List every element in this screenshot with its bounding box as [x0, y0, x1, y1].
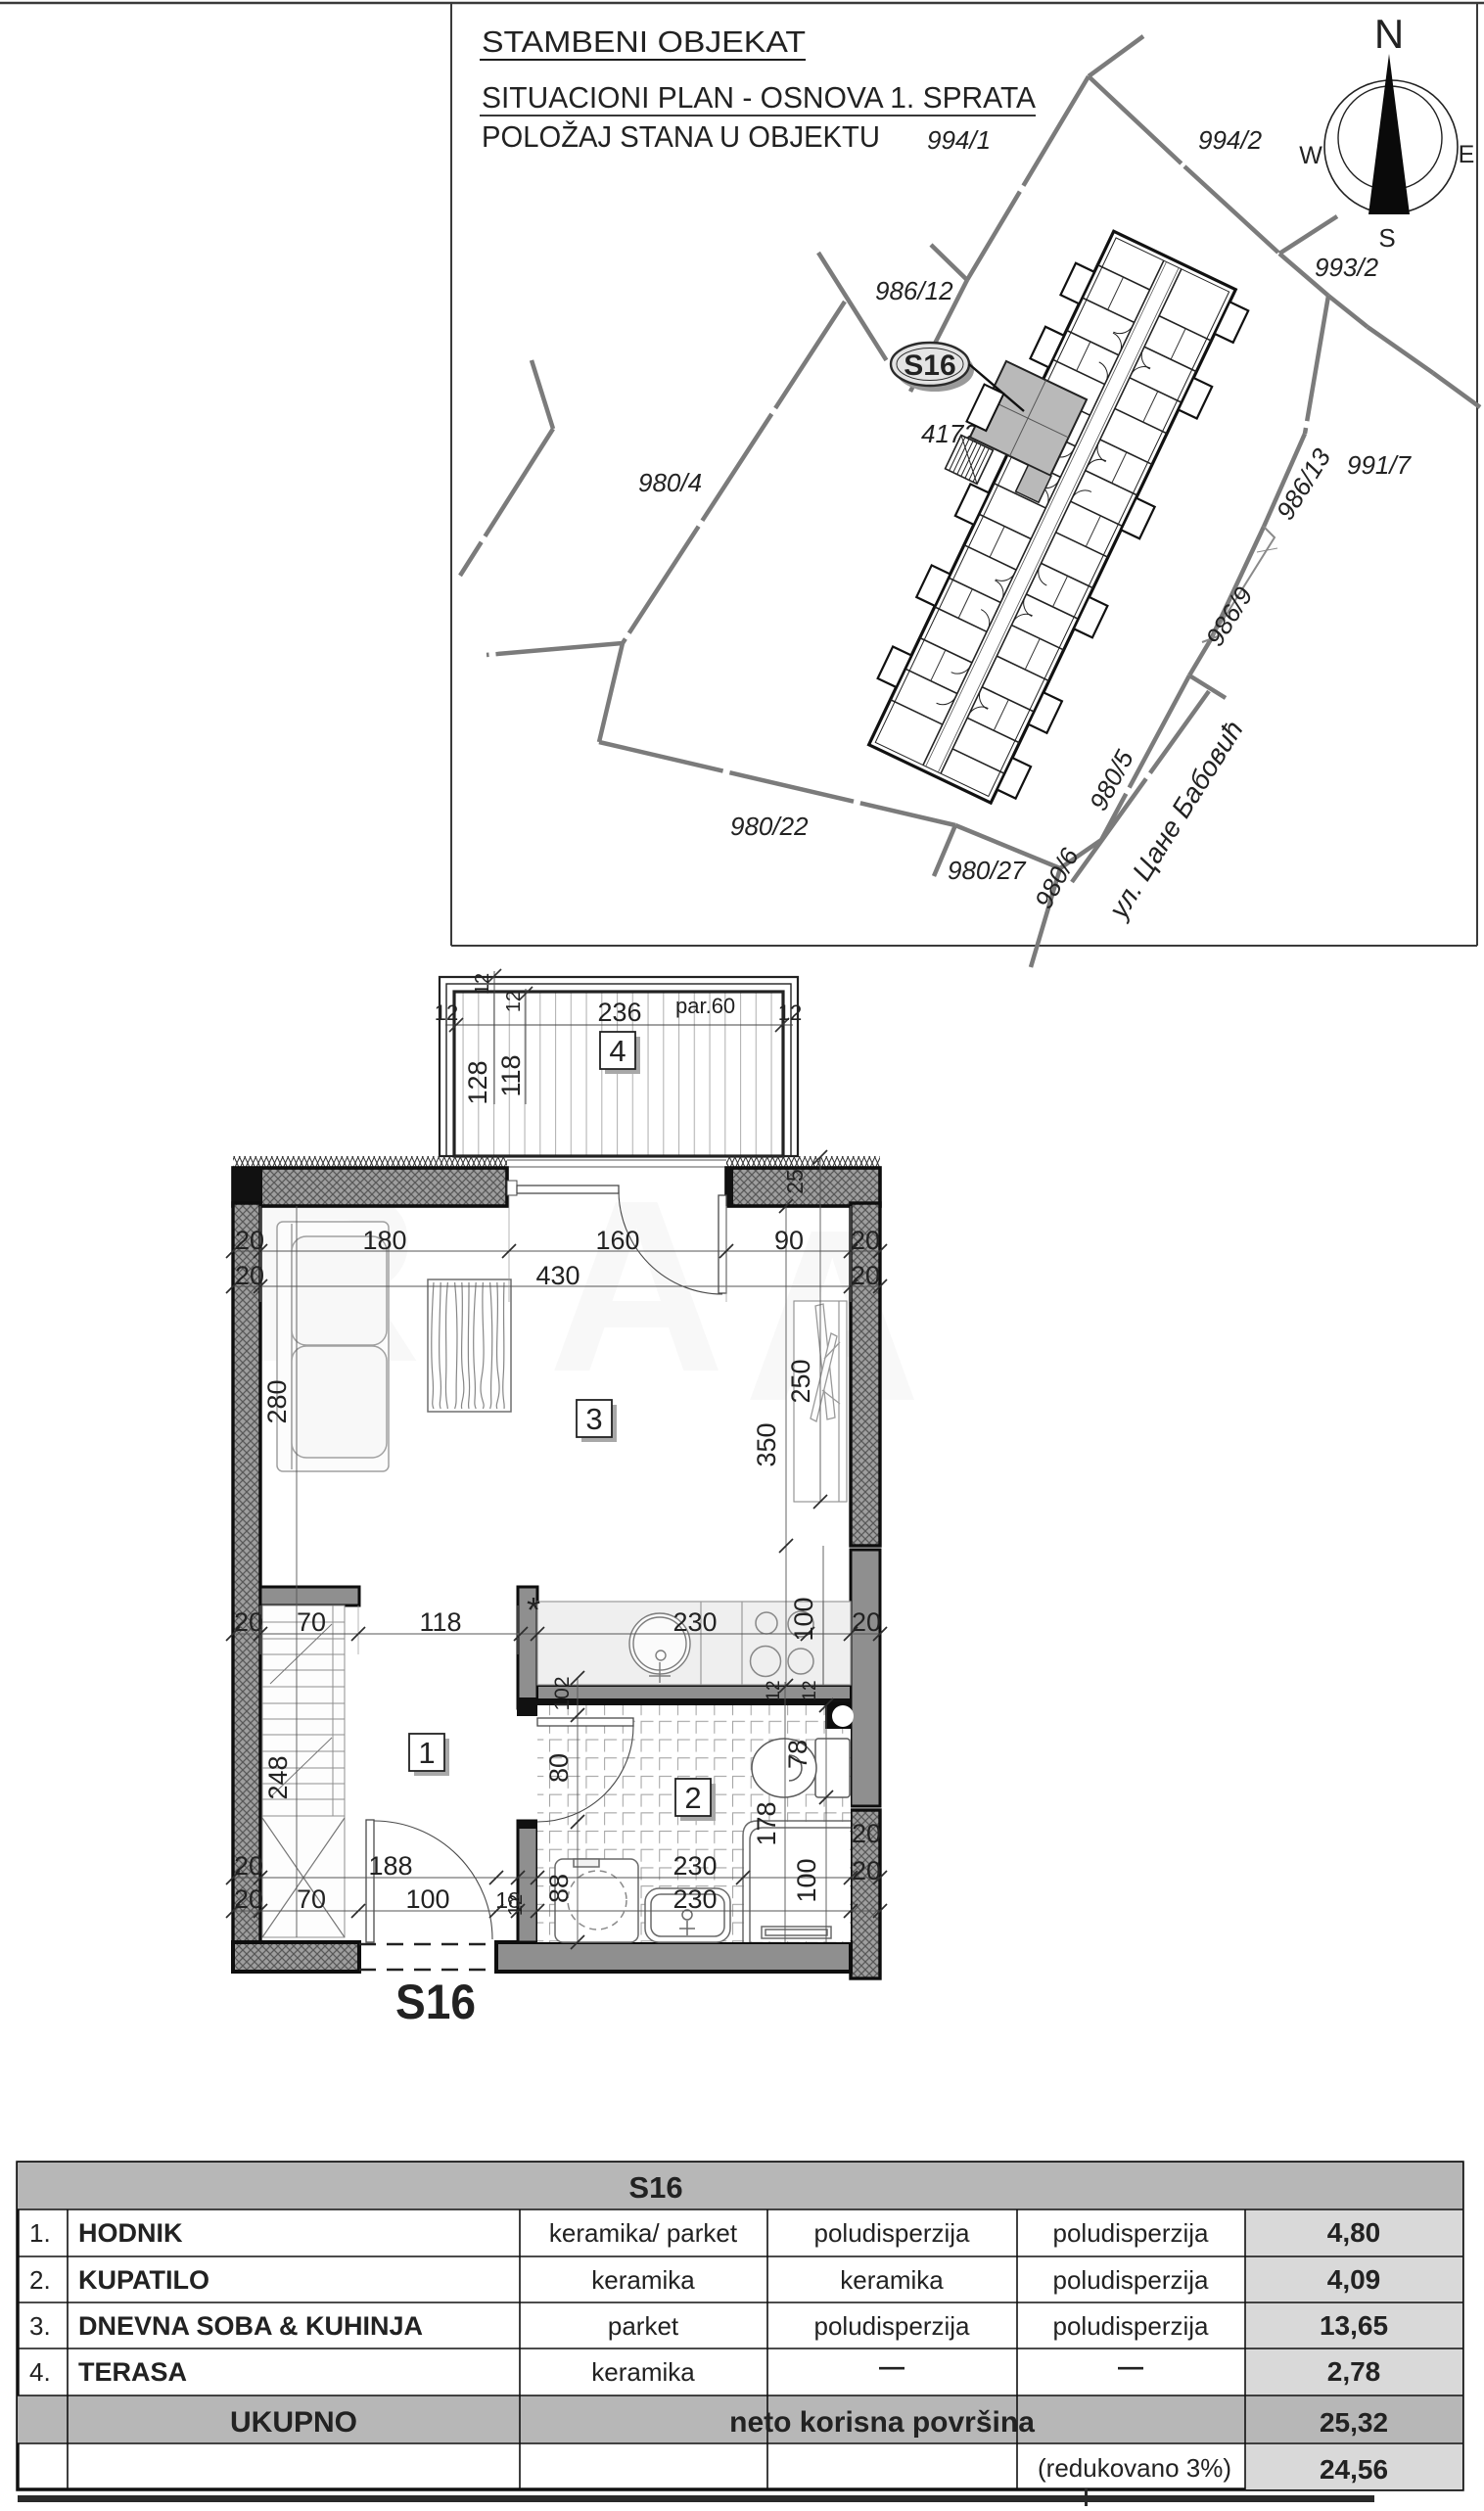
svg-text:994/2: 994/2 [1198, 125, 1263, 155]
svg-text:20: 20 [852, 1856, 881, 1885]
svg-text:UKUPNO: UKUPNO [230, 2406, 357, 2439]
svg-text:poludisperzija: poludisperzija [814, 2311, 971, 2341]
svg-text:par.60: par.60 [675, 994, 735, 1018]
svg-text:80: 80 [544, 1753, 574, 1783]
svg-text:180: 180 [362, 1226, 406, 1255]
svg-text:70: 70 [297, 1607, 326, 1637]
svg-text:neto korisna površina: neto korisna površina [729, 2406, 1035, 2439]
svg-text:DNEVNA SOBA & KUHINJA: DNEVNA SOBA & KUHINJA [78, 2311, 423, 2341]
svg-text:20: 20 [234, 1851, 263, 1881]
svg-text:12: 12 [505, 1894, 527, 1916]
svg-text:4: 4 [609, 1034, 626, 1068]
svg-text:keramika: keramika [840, 2265, 944, 2295]
svg-text:993/2: 993/2 [1315, 253, 1379, 282]
svg-text:E: E [1459, 141, 1475, 168]
svg-text:986/12: 986/12 [875, 276, 953, 305]
svg-text:430: 430 [535, 1261, 580, 1290]
svg-text:280: 280 [262, 1379, 292, 1423]
svg-text:keramika/ parket: keramika/ parket [549, 2218, 738, 2248]
svg-text:88: 88 [544, 1874, 574, 1903]
svg-text:S16: S16 [395, 1975, 476, 2029]
svg-text:236: 236 [597, 998, 641, 1027]
svg-text:20: 20 [234, 1884, 263, 1914]
svg-text:20: 20 [852, 1819, 881, 1848]
svg-text:20: 20 [851, 1261, 880, 1290]
svg-text:S: S [1378, 223, 1395, 253]
svg-text:230: 230 [672, 1884, 717, 1914]
svg-text:S16: S16 [628, 2170, 682, 2205]
svg-text:1: 1 [418, 1736, 435, 1770]
svg-text:parket: parket [608, 2311, 679, 2341]
svg-text:118: 118 [496, 1054, 526, 1096]
svg-text:N: N [1374, 11, 1404, 57]
svg-text:250: 250 [786, 1359, 815, 1403]
svg-text:S16: S16 [904, 349, 955, 382]
svg-text:2: 2 [684, 1781, 701, 1815]
svg-text:TERASA: TERASA [78, 2357, 187, 2387]
svg-text:—: — [1118, 2351, 1143, 2381]
svg-text:178: 178 [752, 1801, 781, 1845]
svg-text:100: 100 [405, 1884, 449, 1914]
svg-text:poludisperzija: poludisperzija [1053, 2218, 1210, 2248]
svg-text:keramika: keramika [591, 2265, 695, 2295]
svg-text:991/7: 991/7 [1347, 450, 1413, 480]
svg-text:980/27: 980/27 [948, 856, 1027, 885]
svg-text:—: — [879, 2351, 904, 2381]
svg-text:188: 188 [368, 1851, 412, 1881]
svg-text:4,09: 4,09 [1327, 2264, 1381, 2295]
svg-text:13,65: 13,65 [1320, 2310, 1388, 2341]
svg-text:24,56: 24,56 [1320, 2454, 1388, 2485]
svg-text:W: W [1299, 142, 1322, 169]
svg-text:poludisperzija: poludisperzija [1053, 2265, 1210, 2295]
svg-text:20: 20 [235, 1226, 264, 1255]
svg-text:2,78: 2,78 [1327, 2356, 1381, 2387]
svg-text:2.: 2. [29, 2265, 51, 2295]
svg-text:SITUACIONI PLAN - OSNOVA 1. SP: SITUACIONI PLAN - OSNOVA 1. SPRATA [482, 80, 1036, 115]
svg-text:90: 90 [774, 1226, 804, 1255]
svg-text:994/1: 994/1 [927, 125, 991, 155]
svg-text:12: 12 [503, 991, 525, 1012]
svg-text:KUPATILO: KUPATILO [78, 2265, 209, 2295]
svg-text:4.: 4. [29, 2357, 51, 2387]
svg-text:POLOŽAJ STANA U OBJEKTU: POLOŽAJ STANA U OBJEKTU [482, 119, 880, 154]
svg-text:20: 20 [851, 1226, 880, 1255]
svg-text:980/22: 980/22 [730, 812, 809, 841]
svg-text:3.: 3. [29, 2311, 51, 2341]
svg-text:102: 102 [551, 1676, 574, 1710]
svg-text:1.: 1. [29, 2218, 51, 2248]
svg-text:248: 248 [263, 1755, 293, 1799]
svg-text:(redukovano 3%): (redukovano 3%) [1038, 2453, 1231, 2483]
svg-text:3: 3 [585, 1402, 602, 1436]
svg-text:70: 70 [297, 1884, 326, 1914]
svg-text:230: 230 [672, 1851, 717, 1881]
svg-text:12: 12 [778, 1000, 802, 1025]
svg-text:20: 20 [234, 1607, 263, 1637]
svg-text:poludisperzija: poludisperzija [1053, 2311, 1210, 2341]
svg-text:12: 12 [800, 1680, 820, 1700]
svg-text:20: 20 [235, 1261, 264, 1290]
svg-text:*: * [527, 1590, 540, 1630]
svg-text:HODNIK: HODNIK [78, 2218, 183, 2248]
svg-text:12: 12 [435, 1000, 458, 1025]
svg-text:4,80: 4,80 [1327, 2217, 1381, 2248]
svg-text:128: 128 [463, 1060, 492, 1104]
svg-text:keramika: keramika [591, 2357, 695, 2387]
svg-text:100: 100 [789, 1597, 818, 1641]
svg-text:STAMBENI OBJEKAT: STAMBENI OBJEKAT [482, 24, 806, 59]
svg-text:230: 230 [672, 1607, 717, 1637]
svg-text:25,32: 25,32 [1320, 2407, 1388, 2438]
svg-text:118: 118 [419, 1607, 461, 1637]
svg-text:12: 12 [472, 973, 493, 995]
svg-text:25: 25 [782, 1169, 808, 1194]
svg-text:100: 100 [792, 1858, 821, 1902]
svg-text:12: 12 [764, 1680, 784, 1700]
svg-text:poludisperzija: poludisperzija [814, 2218, 971, 2248]
svg-text:78: 78 [783, 1740, 812, 1769]
svg-text:980/4: 980/4 [638, 468, 702, 497]
svg-text:350: 350 [752, 1422, 781, 1466]
svg-text:20: 20 [852, 1607, 881, 1637]
svg-text:160: 160 [595, 1226, 639, 1255]
